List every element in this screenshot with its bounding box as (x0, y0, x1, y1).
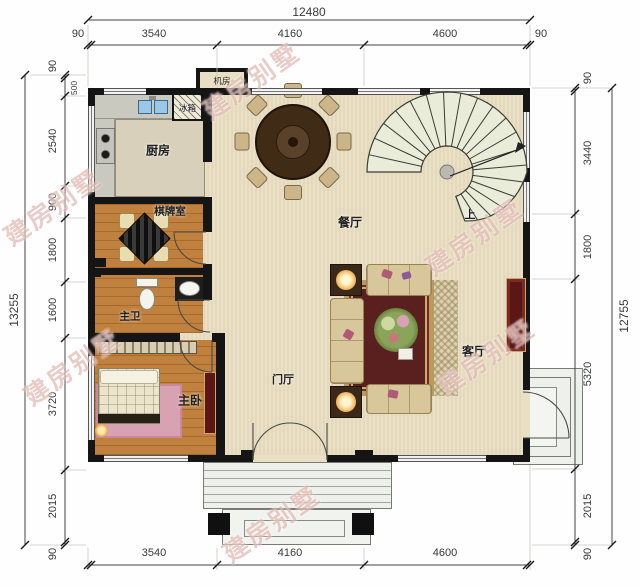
window (358, 88, 420, 95)
kitchen-faucet (149, 96, 156, 100)
wash-basin (179, 281, 200, 296)
sofa (330, 298, 364, 384)
machine-room-label: 机房 (202, 75, 242, 87)
wall-nub (92, 258, 106, 267)
dim-top-seg: 4600 (433, 28, 457, 40)
entry-door-opening (253, 455, 327, 462)
wall-nub (92, 270, 101, 277)
interior-wall (88, 197, 210, 204)
window (398, 455, 486, 462)
porch-column (208, 513, 230, 535)
table-lamp (336, 270, 356, 290)
dim-right-seg: 90 (582, 72, 594, 84)
refrigerator: 冰箱 (172, 93, 203, 121)
dining-table-center (288, 137, 298, 147)
sofa (366, 384, 432, 414)
dim-left-total: 13255 (7, 293, 21, 326)
dim-bottom-seg: 3540 (142, 547, 166, 559)
window (104, 455, 188, 462)
sofa (366, 264, 432, 296)
dim-bottom-seg: 4160 (278, 547, 302, 559)
dim-top-seg: 4160 (278, 28, 302, 40)
stove-burner (101, 134, 110, 143)
dim-right-seg: 5320 (582, 362, 594, 386)
dim-left-seg: 1600 (47, 298, 59, 322)
interior-wall (216, 340, 225, 455)
dining-room-label: 餐厅 (338, 214, 362, 231)
interior-wall (88, 268, 210, 275)
master-bath-label: 主卫 (120, 309, 141, 324)
dim-top-seg: 90 (535, 28, 547, 40)
interior-wall (88, 333, 180, 342)
side-door-opening (523, 390, 530, 438)
master-bedroom-label: 主卧 (178, 392, 202, 409)
stove-burner (101, 150, 110, 159)
dim-right-seg: 2015 (582, 494, 594, 518)
dim-right-total: 12755 (617, 299, 631, 332)
living-runner-carpet (432, 280, 458, 396)
bed-pillows (100, 370, 158, 384)
dim-left-seg: 90 (47, 548, 59, 560)
kitchen-label: 厨房 (146, 142, 170, 159)
bed-blanket-fold (98, 414, 160, 423)
toilet-bowl (139, 288, 155, 310)
dim-top-total: 12480 (292, 5, 325, 19)
dim-left-seg: 2540 (47, 129, 59, 153)
bedside-lamp (95, 424, 108, 437)
entry-pier (355, 450, 373, 462)
dim-left-seg: 2015 (47, 494, 59, 518)
wardrobe (99, 341, 197, 354)
window (104, 88, 146, 95)
foyer-label: 门厅 (272, 371, 294, 387)
dim-top-seg: 3540 (142, 28, 166, 40)
refrigerator-label: 冰箱 (174, 102, 201, 114)
dim-right-seg: 3440 (582, 141, 594, 165)
dim-right-seg: 90 (582, 548, 594, 560)
floral-centerpiece (374, 308, 418, 352)
entry-pier (241, 450, 253, 462)
chess-room-label: 棋牌室 (154, 204, 186, 219)
window (523, 112, 530, 168)
dim-left-seg: 90 (47, 60, 59, 72)
window (88, 356, 95, 440)
living-room-label: 客厅 (462, 343, 486, 360)
window (88, 106, 95, 192)
dining-chair (235, 133, 250, 151)
dim-left-seg: 1800 (47, 238, 59, 262)
dining-chair (284, 185, 302, 200)
toilet-tank (136, 278, 158, 287)
stairs-up-label: 上 (465, 206, 476, 222)
porch-column (352, 513, 374, 535)
tea-tray (398, 348, 413, 360)
interior-wall (203, 88, 212, 162)
sofa-pillow (387, 389, 398, 399)
dim-left-seg: 900 (47, 193, 59, 211)
living-tv-cabinet (506, 278, 526, 352)
dim-left-seg: 500 (69, 81, 79, 95)
floor-plan-canvas: 机房 冰箱 (0, 0, 640, 587)
dining-chair (337, 133, 352, 151)
dim-top-seg: 90 (72, 28, 84, 40)
front-porch-steps (203, 462, 392, 509)
bedroom-tv-cabinet (204, 372, 216, 434)
front-porch-inner-step (244, 520, 345, 537)
window (523, 182, 530, 222)
dim-right-seg: 1800 (582, 235, 594, 259)
window (252, 88, 322, 95)
window (430, 88, 480, 95)
dim-bottom-seg: 4600 (433, 547, 457, 559)
kitchen-sink-basin (138, 100, 152, 114)
kitchen-sink-basin (154, 100, 168, 114)
dim-left-seg: 3720 (47, 392, 59, 416)
table-lamp (336, 392, 356, 412)
